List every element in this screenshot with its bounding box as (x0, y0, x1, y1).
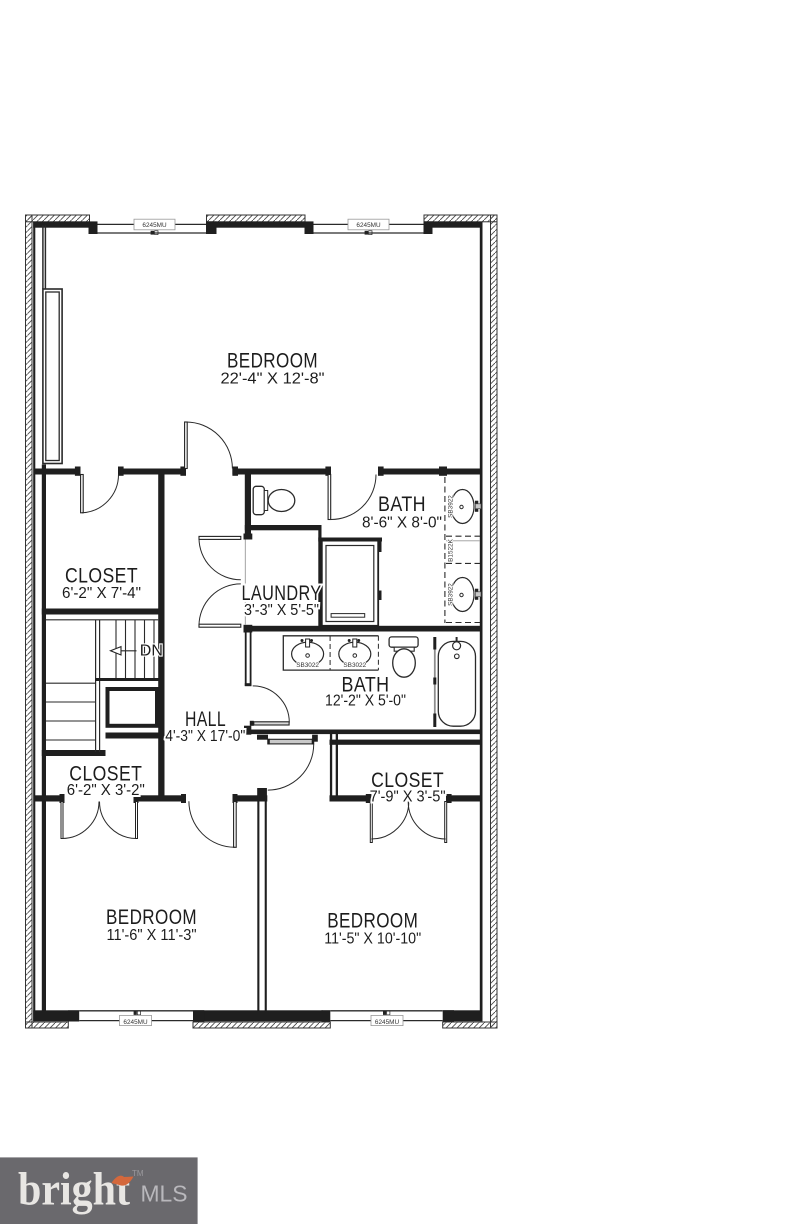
svg-text:7'-9" X 3'-5": 7'-9" X 3'-5" (370, 788, 446, 805)
svg-text:11'-5" X 10'-10": 11'-5" X 10'-10" (324, 930, 421, 947)
svg-text:SB3022: SB3022 (343, 662, 366, 669)
svg-text:3'-3" X 5'-5": 3'-3" X 5'-5" (244, 602, 319, 619)
svg-text:BEDROOM: BEDROOM (327, 909, 418, 933)
svg-text:bright: bright (18, 1164, 130, 1216)
svg-text:22'-4" X 12'-8": 22'-4" X 12'-8" (221, 371, 325, 388)
svg-text:SB3022: SB3022 (296, 662, 319, 669)
svg-text:8'-6" X 8'-0": 8'-6" X 8'-0" (362, 515, 442, 532)
svg-text:6245MU: 6245MU (356, 222, 381, 229)
svg-text:12'-2" X 5'-0": 12'-2" X 5'-0" (325, 693, 406, 710)
svg-text:B1522K: B1522K (448, 538, 455, 561)
svg-text:4'-3" X 17'-0": 4'-3" X 17'-0" (165, 728, 245, 745)
svg-text:6245MU: 6245MU (375, 1019, 400, 1026)
svg-text:6245MU: 6245MU (142, 222, 167, 229)
svg-text:BEDROOM: BEDROOM (227, 349, 318, 373)
svg-text:6'-2" X 7'-4": 6'-2" X 7'-4" (62, 585, 141, 602)
svg-text:TM: TM (132, 1169, 144, 1178)
svg-text:SB3922: SB3922 (448, 495, 455, 518)
svg-text:11'-6" X 11'-3": 11'-6" X 11'-3" (107, 927, 197, 944)
svg-text:6'-2" X 3'-2": 6'-2" X 3'-2" (67, 782, 145, 799)
svg-text:DN: DN (140, 643, 163, 660)
svg-text:6245MU: 6245MU (123, 1019, 148, 1026)
svg-text:CLOSET: CLOSET (65, 563, 138, 587)
svg-text:MLS: MLS (141, 1181, 188, 1207)
svg-text:BEDROOM: BEDROOM (106, 905, 197, 929)
svg-text:BATH: BATH (378, 492, 426, 516)
svg-text:SB3922: SB3922 (448, 583, 455, 606)
